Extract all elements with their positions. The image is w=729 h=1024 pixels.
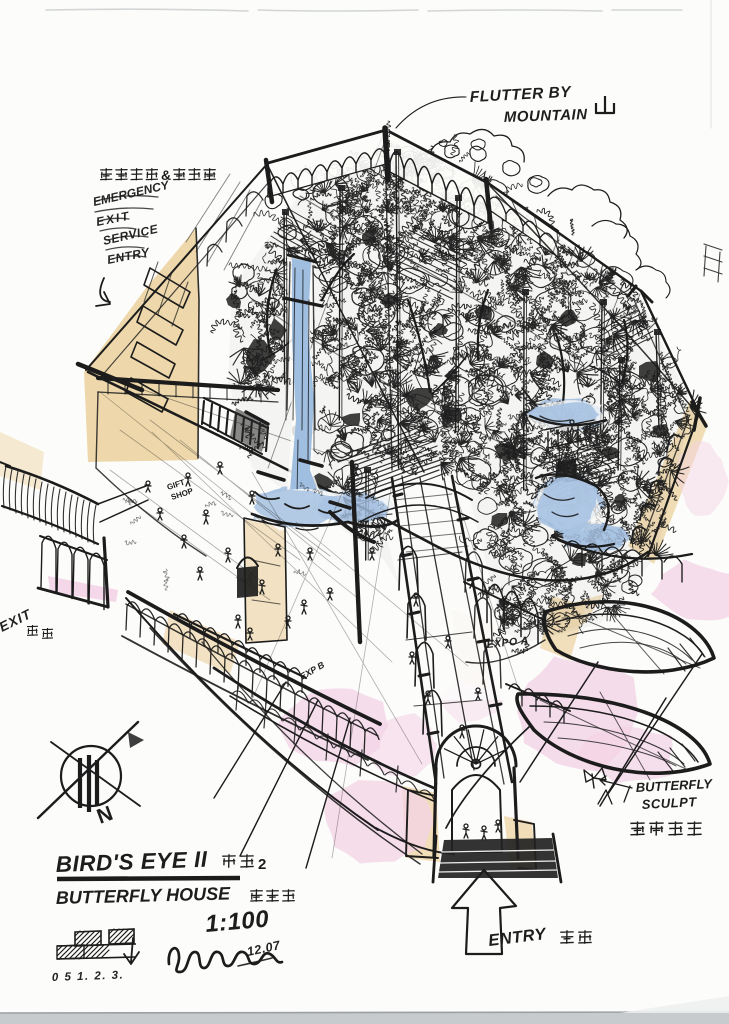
svg-text:BIRD'S EYE II: BIRD'S EYE II (55, 847, 208, 877)
svg-text:1:100: 1:100 (204, 905, 270, 937)
svg-text:MOUNTAIN: MOUNTAIN (504, 106, 589, 126)
svg-text:2: 2 (258, 856, 266, 873)
svg-text:SCULPT: SCULPT (641, 794, 697, 812)
svg-text:0 5 1. 2. 3.: 0 5 1. 2. 3. (52, 969, 125, 984)
